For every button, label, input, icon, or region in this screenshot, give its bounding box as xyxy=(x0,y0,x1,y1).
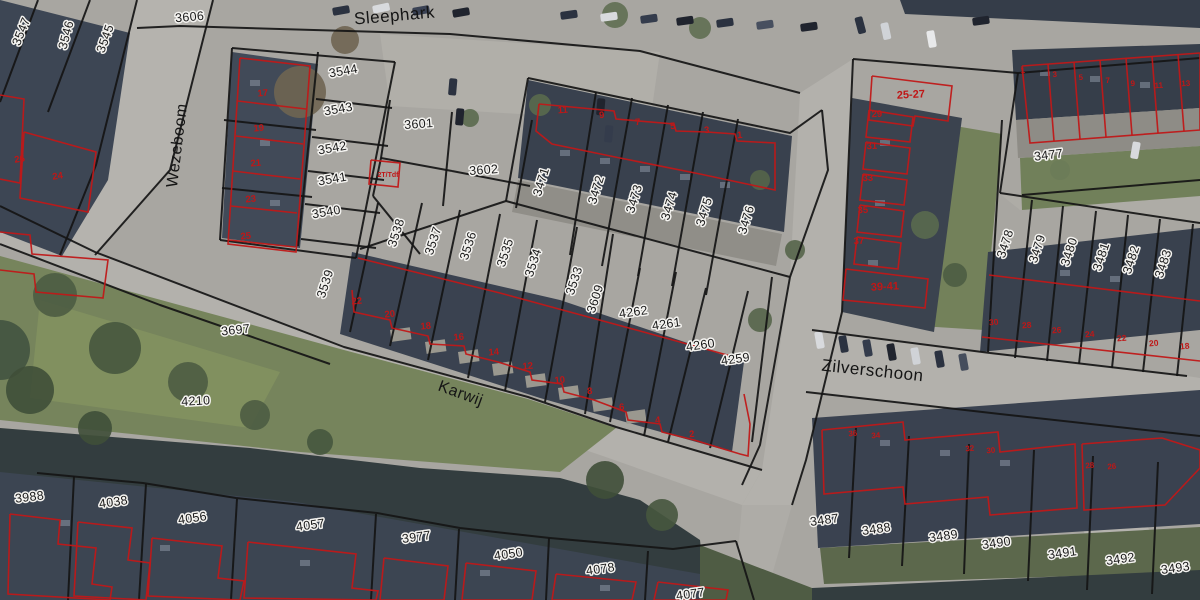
house-number-label: 28 xyxy=(1022,320,1033,331)
house-number-label: 19 xyxy=(253,123,264,135)
house-number-label: 8 xyxy=(587,386,593,397)
house-number-label: 17 xyxy=(257,88,268,100)
house-number-label: 11 xyxy=(557,105,569,117)
house-number-label: 3 xyxy=(704,125,710,136)
house-number-label: 20 xyxy=(1149,338,1160,349)
house-number-label: 10 xyxy=(554,375,565,387)
house-number-label: 23 xyxy=(245,194,256,206)
house-number-label: 28 xyxy=(1085,461,1095,471)
house-number-label: 22 xyxy=(351,296,362,308)
house-number-label: 20 xyxy=(384,309,395,321)
house-number-label: 39-41 xyxy=(870,280,899,293)
house-number-label: 13 xyxy=(1181,79,1191,89)
house-number-label: 12 xyxy=(522,361,533,373)
house-number-label: 25-27 xyxy=(896,88,925,101)
house-number-label: 2 xyxy=(689,429,695,440)
parcel-number-label: 3606 xyxy=(175,9,205,25)
house-number-label: 24 xyxy=(1085,329,1096,340)
house-number-label: 26 xyxy=(14,153,26,165)
house-number-label: 22 xyxy=(1117,333,1128,344)
house-number-label: 18 xyxy=(420,321,431,333)
house-number-label: 36 xyxy=(848,429,858,439)
map-viewport[interactable]: 3547354635453606354435433542354135403601… xyxy=(0,0,1200,600)
parcel-number-label: 3601 xyxy=(404,116,434,132)
house-number-label: 31 xyxy=(866,141,878,153)
house-number-label: 2T/Tdf xyxy=(378,172,400,179)
house-number-label: 25 xyxy=(240,231,252,243)
house-number-label: 30 xyxy=(989,317,1000,328)
house-number-label: 21 xyxy=(250,158,262,170)
house-number-label: 26 xyxy=(1107,462,1117,472)
house-number-label: 26 xyxy=(1052,325,1063,336)
house-number-label: 16 xyxy=(453,332,464,344)
house-number-label: 32 xyxy=(965,444,975,454)
house-number-label: 11 xyxy=(1154,81,1164,91)
house-number-label: 35 xyxy=(857,205,869,217)
house-number-label: 14 xyxy=(488,347,500,359)
house-number-label: 18 xyxy=(1180,341,1191,352)
parcel-number-label: 4210 xyxy=(181,393,211,408)
house-number-label: 9 xyxy=(599,110,605,121)
house-number-label: 33 xyxy=(862,173,873,185)
parcel-number-label: 3602 xyxy=(469,162,499,178)
house-number-label: 37 xyxy=(853,236,864,248)
aerial-cadastral-map[interactable]: 3547354635453606354435433542354135403601… xyxy=(0,0,1200,600)
house-number-label: 7 xyxy=(635,117,641,128)
house-number-label: 6 xyxy=(619,402,625,413)
house-number-label: 34 xyxy=(871,431,881,441)
house-number-label: 30 xyxy=(986,446,996,456)
house-number-label: 29 xyxy=(871,109,882,121)
